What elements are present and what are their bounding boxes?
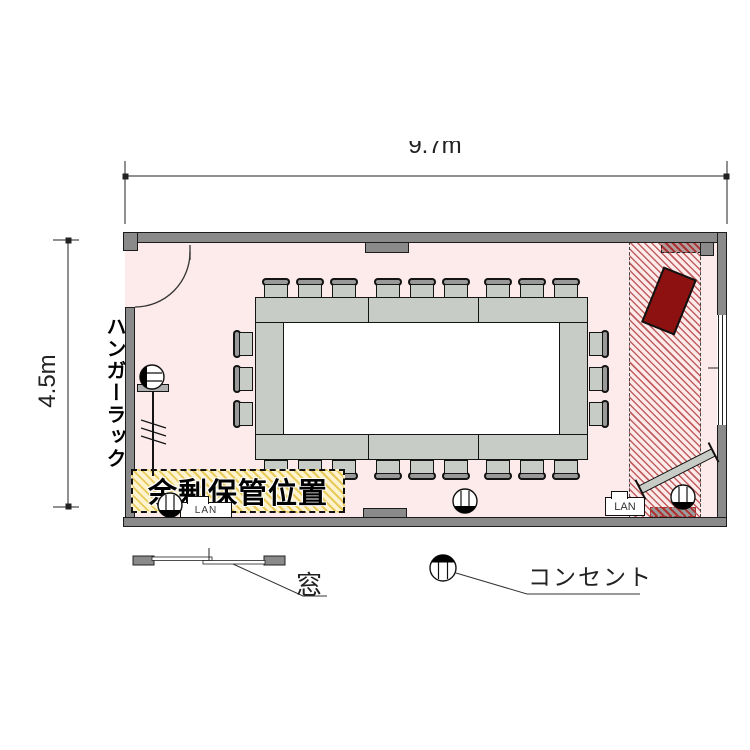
outlet-icon-bottom-left	[158, 493, 182, 517]
legend-window-icon	[133, 548, 285, 565]
outlet-icon-bottom-right	[671, 485, 695, 509]
dimension-height-label: 4.5m	[34, 326, 60, 436]
floor-plan: 余剰保管位置 LAN LAN	[0, 0, 750, 750]
outlet-icon-left-wall	[140, 365, 164, 389]
legend-window-label: 窓	[296, 565, 322, 602]
hanger-rack-label: ハンガーラック	[100, 316, 129, 470]
dimension-width	[123, 161, 729, 224]
legend-outlet-icon	[430, 555, 456, 581]
legend-outlet-label: コンセント	[528, 558, 653, 592]
door-icon	[135, 245, 190, 307]
hanger-rack-icon	[141, 392, 166, 476]
outlet-icon-bottom-center	[453, 489, 477, 513]
dimension-width-label: 9.7m	[385, 141, 485, 161]
window-right-wall-icon	[708, 315, 727, 425]
